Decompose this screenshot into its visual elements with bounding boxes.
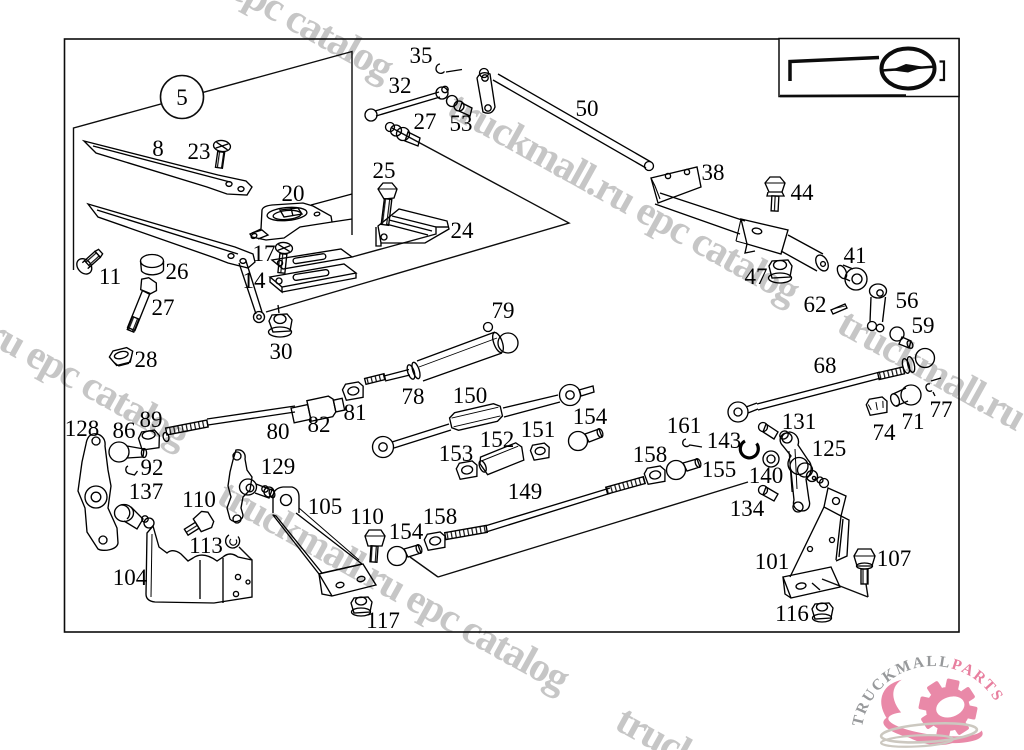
svg-text:110: 110 xyxy=(350,504,384,529)
svg-text:137: 137 xyxy=(129,479,164,504)
svg-text:50: 50 xyxy=(576,96,599,121)
svg-text:8: 8 xyxy=(152,136,164,161)
svg-text:44: 44 xyxy=(791,180,815,205)
svg-text:62: 62 xyxy=(804,292,827,317)
svg-text:25: 25 xyxy=(373,158,396,183)
svg-text:56: 56 xyxy=(896,288,919,313)
svg-text:14: 14 xyxy=(243,268,267,293)
svg-text:134: 134 xyxy=(730,496,765,521)
svg-text:107: 107 xyxy=(877,546,912,571)
svg-text:26: 26 xyxy=(166,259,189,284)
svg-text:78: 78 xyxy=(402,384,425,409)
svg-text:24: 24 xyxy=(451,218,475,243)
svg-text:125: 125 xyxy=(812,436,847,461)
svg-text:128: 128 xyxy=(65,416,100,441)
svg-text:53: 53 xyxy=(450,111,473,136)
svg-text:150: 150 xyxy=(453,383,488,408)
svg-text:80: 80 xyxy=(267,419,290,444)
svg-text:89: 89 xyxy=(140,407,163,432)
svg-text:116: 116 xyxy=(775,601,809,626)
svg-text:20: 20 xyxy=(282,181,305,206)
svg-text:158: 158 xyxy=(423,504,458,529)
svg-text:82: 82 xyxy=(308,412,331,437)
svg-text:41: 41 xyxy=(844,243,867,268)
svg-text:5: 5 xyxy=(176,85,188,110)
svg-text:158: 158 xyxy=(633,442,668,467)
svg-text:23: 23 xyxy=(188,139,211,164)
svg-text:35: 35 xyxy=(410,43,433,68)
svg-text:155: 155 xyxy=(702,457,737,482)
svg-text:153: 153 xyxy=(439,441,474,466)
svg-text:101: 101 xyxy=(755,549,790,574)
svg-text:161: 161 xyxy=(667,413,702,438)
svg-text:105: 105 xyxy=(308,494,343,519)
svg-text:149: 149 xyxy=(508,479,543,504)
svg-text:59: 59 xyxy=(912,313,935,338)
svg-text:154: 154 xyxy=(573,404,608,429)
svg-text:27: 27 xyxy=(152,295,175,320)
svg-text:74: 74 xyxy=(873,420,897,445)
svg-text:11: 11 xyxy=(99,264,121,289)
svg-text:154: 154 xyxy=(389,519,424,544)
svg-text:117: 117 xyxy=(366,608,400,633)
svg-text:68: 68 xyxy=(814,353,837,378)
svg-text:32: 32 xyxy=(389,73,412,98)
svg-text:92: 92 xyxy=(141,455,164,480)
svg-text:81: 81 xyxy=(344,400,367,425)
svg-text:104: 104 xyxy=(113,565,148,590)
svg-text:152: 152 xyxy=(480,427,515,452)
svg-text:110: 110 xyxy=(182,487,216,512)
svg-text:140: 140 xyxy=(749,463,784,488)
svg-text:129: 129 xyxy=(261,454,296,479)
svg-text:131: 131 xyxy=(782,409,817,434)
svg-text:47: 47 xyxy=(745,264,768,289)
svg-text:79: 79 xyxy=(492,298,515,323)
svg-text:113: 113 xyxy=(189,533,223,558)
svg-text:27: 27 xyxy=(414,109,437,134)
svg-text:38: 38 xyxy=(702,160,725,185)
svg-text:151: 151 xyxy=(521,417,556,442)
svg-text:28: 28 xyxy=(135,347,158,372)
svg-text:17: 17 xyxy=(253,241,276,266)
svg-text:71: 71 xyxy=(902,409,925,434)
svg-text:143: 143 xyxy=(707,428,742,453)
svg-text:77: 77 xyxy=(930,397,953,422)
svg-text:86: 86 xyxy=(113,418,136,443)
svg-text:30: 30 xyxy=(270,339,293,364)
